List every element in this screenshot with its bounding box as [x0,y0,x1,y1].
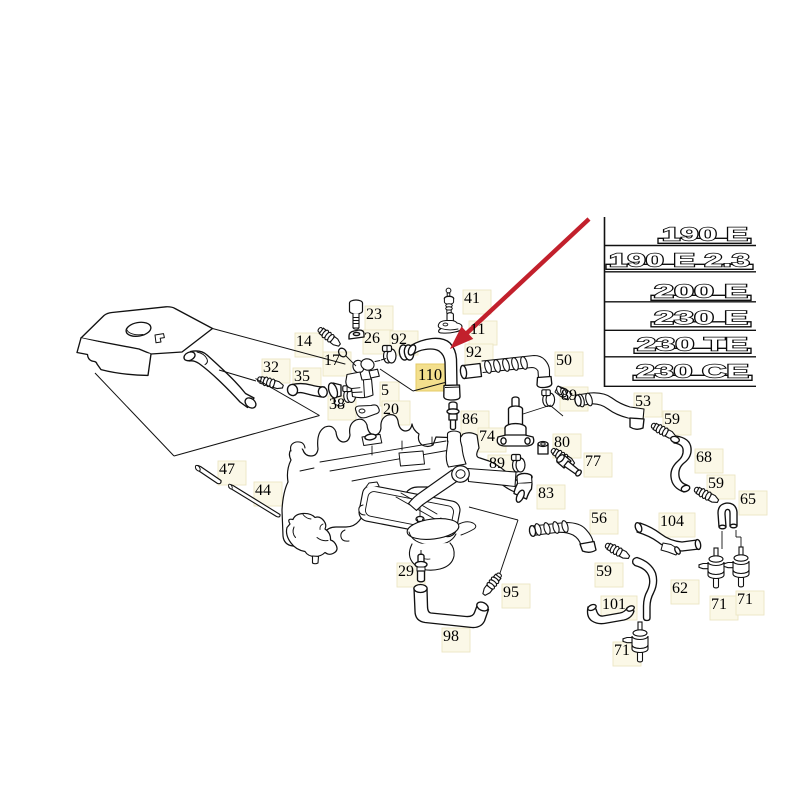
svg-text:71: 71 [711,596,727,613]
svg-text:190 E: 190 E [662,224,748,245]
svg-text:89: 89 [561,387,577,404]
svg-text:59: 59 [664,411,680,428]
svg-text:35: 35 [294,368,310,385]
svg-text:77: 77 [585,453,601,470]
svg-text:101: 101 [602,596,626,613]
svg-text:50: 50 [556,352,572,369]
svg-text:53: 53 [635,393,651,410]
svg-text:92: 92 [466,344,482,361]
svg-text:41: 41 [464,290,480,307]
svg-text:80: 80 [554,434,570,451]
svg-text:26: 26 [364,330,380,347]
svg-text:71: 71 [737,591,753,608]
svg-text:230 TE: 230 TE [637,334,748,355]
svg-text:74: 74 [479,428,495,445]
svg-text:104: 104 [660,513,684,530]
svg-text:17: 17 [324,352,340,369]
svg-text:98: 98 [443,628,459,645]
svg-text:89: 89 [489,455,505,472]
svg-text:83: 83 [538,485,554,502]
svg-text:95: 95 [503,584,519,601]
svg-text:20: 20 [383,401,399,418]
svg-text:59: 59 [596,563,612,580]
svg-text:59: 59 [708,475,724,492]
svg-text:38: 38 [329,396,345,413]
svg-text:92: 92 [391,331,407,348]
svg-text:110: 110 [418,365,442,384]
svg-text:65: 65 [740,491,756,508]
svg-text:86: 86 [462,411,478,428]
svg-text:68: 68 [696,449,712,466]
svg-text:47: 47 [219,461,235,478]
svg-text:200 E: 200 E [654,281,748,302]
svg-text:44: 44 [255,482,271,499]
svg-text:5: 5 [381,382,389,399]
svg-text:32: 32 [263,359,279,376]
svg-text:190 E 2.3: 190 E 2.3 [609,250,750,271]
svg-text:14: 14 [296,333,312,350]
svg-text:230 E: 230 E [654,307,748,328]
svg-text:11: 11 [470,321,485,338]
svg-text:71: 71 [614,642,630,659]
svg-text:29: 29 [398,563,414,580]
svg-text:62: 62 [672,580,688,597]
svg-text:230 CE: 230 CE [636,361,749,382]
svg-text:23: 23 [366,306,382,323]
svg-text:56: 56 [591,510,607,527]
